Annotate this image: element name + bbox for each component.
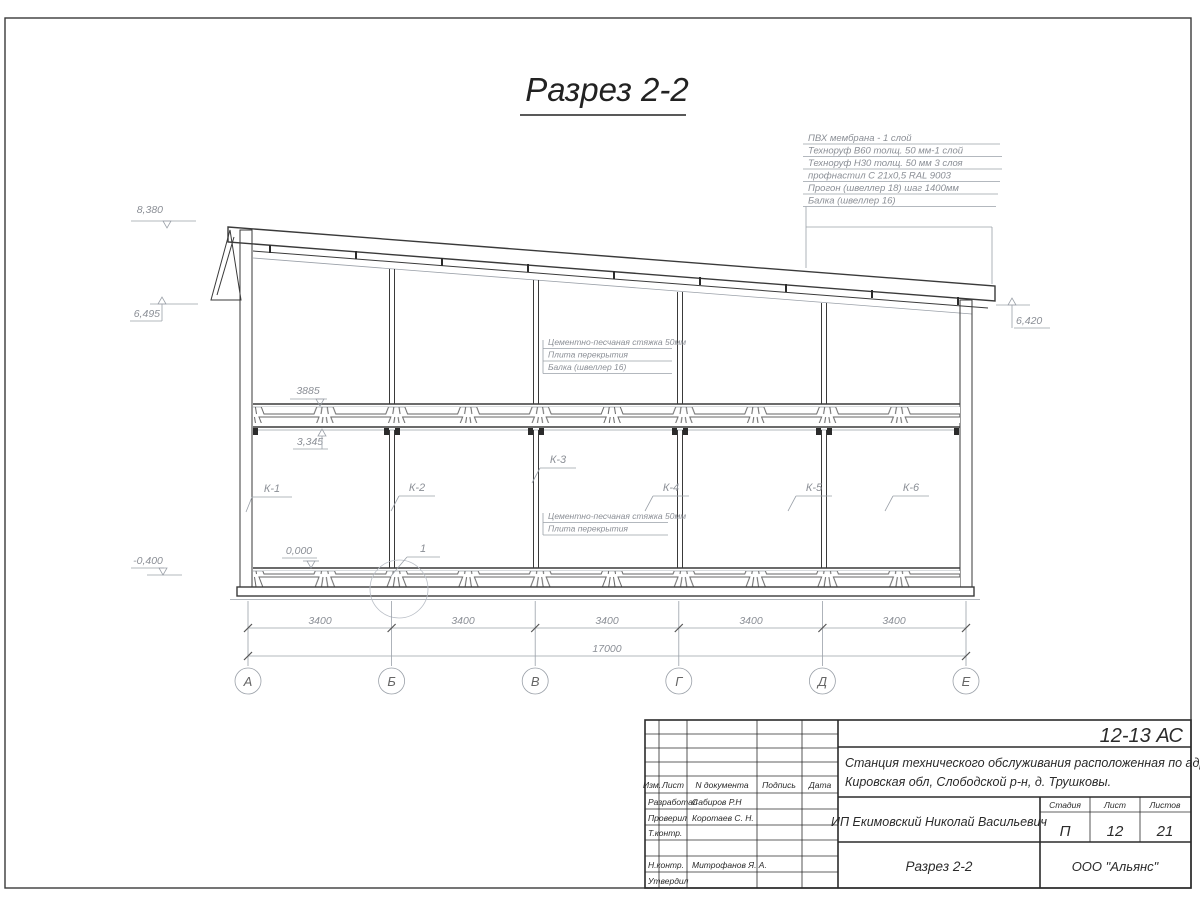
column-label-k2: К-2	[391, 482, 435, 511]
deck-profile	[253, 407, 960, 423]
upper-floor-callout: Цементно-песчаная стяжка 50мм Плита пере…	[543, 337, 686, 374]
detail-number: 1	[420, 543, 426, 555]
elevation-arrow-icon	[163, 221, 171, 228]
header-date: Дата	[808, 780, 832, 790]
elevation-eaves-right: 6,420	[996, 298, 1050, 328]
lower-floor-callout: Цементно-песчаная стяжка 50мм Плита пере…	[543, 511, 686, 535]
column-label-text: К-3	[550, 454, 567, 466]
project-line-1: Станция технического обслуживания распол…	[845, 756, 1200, 770]
roof-layer-line: Техноруф В60 толщ. 50 мм-1 слой	[808, 146, 964, 157]
dim-bay: 3400	[308, 615, 332, 627]
upper-floor-line: Плита перекрытия	[548, 350, 628, 360]
roof-layer-line: Техноруф Н30 толщ. 50 мм 3 слоя	[808, 158, 963, 169]
dim-bay: 3400	[739, 615, 763, 627]
ground-deck-profile	[253, 571, 960, 587]
role-label: Разработал	[648, 797, 698, 807]
role-label: Т.контр.	[648, 828, 682, 838]
stage-value: П	[1060, 823, 1071, 840]
elevation-eaves-left-value: 6,495	[134, 308, 160, 320]
title-block-header: Изм. Лист N документа Подпись Дата	[643, 780, 832, 790]
column-label-text: К-2	[409, 482, 425, 494]
axis-label: Б	[387, 674, 396, 689]
lower-floor-line: Цементно-песчаная стяжка 50мм	[548, 511, 686, 521]
elevation-top: 8,380	[131, 204, 196, 228]
column-label-k1: К-1	[246, 483, 292, 512]
foundation-slab	[237, 587, 974, 596]
header-doc: N документа	[695, 780, 748, 790]
elevation-ground-value: -0,400	[133, 555, 163, 567]
elevation-floor: 0,000	[282, 545, 319, 568]
elevation-beam-bottom: 3,345	[293, 429, 328, 449]
elevation-beam-bottom-value: 3,345	[297, 436, 323, 448]
sheet-label: Лист	[1103, 800, 1126, 810]
elevation-arrow-icon	[1008, 298, 1016, 305]
axis-label: В	[531, 674, 540, 689]
page-title: Разрез 2-2	[525, 71, 689, 108]
roof-layer-line: профнастил С 21х0,5 RAL 9003	[808, 171, 952, 182]
doc-number: 12-13 АС	[1100, 725, 1184, 747]
project-line-2: Кировская обл, Слободской р-н, д. Трушко…	[845, 775, 1111, 789]
sheet-value: 12	[1107, 823, 1124, 840]
elevation-arrow-icon	[316, 399, 324, 406]
role-label: Проверил	[648, 813, 687, 823]
drawing-sheet: Разрез 2-2 ПВХ мембрана - 1 слой Технору…	[0, 0, 1200, 900]
elevation-slab-top: 3885	[290, 385, 327, 406]
upper-floor-line: Цементно-песчаная стяжка 50мм	[548, 337, 686, 347]
sheets-value: 21	[1156, 823, 1174, 840]
lower-columns	[390, 430, 827, 568]
roof-layer-line: Балка (швеллер 16)	[808, 196, 896, 207]
elevation-arrow-icon	[307, 561, 315, 568]
column-label-text: К-5	[806, 482, 823, 494]
role-name: Коротаев С. Н.	[692, 813, 754, 823]
role-name: Сабиров Р.Н	[692, 797, 742, 807]
lower-floor-line: Плита перекрытия	[548, 524, 628, 534]
column-label-text: К-1	[264, 483, 280, 495]
elevation-eaves-left: 6,495	[130, 297, 198, 321]
header-list: Лист	[661, 780, 684, 790]
section-drawing-canvas: Разрез 2-2 ПВХ мембрана - 1 слой Технору…	[0, 0, 1200, 900]
header-sign: Подпись	[762, 780, 796, 790]
role-name: Митрофанов Я. А.	[692, 860, 767, 870]
dim-values: 3400 3400 3400 3400 3400 17000	[308, 615, 906, 655]
role-label: Н.контр.	[648, 860, 684, 870]
title-block: Изм. Лист N документа Подпись Дата Разра…	[643, 720, 1200, 888]
elevation-eaves-right-value: 6,420	[1016, 315, 1042, 327]
client-name: ИП Екимовский Николай Васильевич	[831, 815, 1047, 829]
title-block-roles: Разработал Сабиров Р.Н Проверил Коротаев…	[647, 797, 767, 886]
column-label-text: К-4	[663, 482, 679, 494]
company-name: ООО "Альянс"	[1072, 859, 1160, 874]
roof-slab	[228, 227, 995, 301]
elevation-arrow-icon	[158, 297, 166, 304]
roof-assembly	[211, 227, 995, 314]
elevation-floor-value: 0,000	[286, 545, 312, 557]
dim-bay: 3400	[882, 615, 906, 627]
role-label: Утвердил	[647, 876, 689, 886]
elevation-top-value: 8,380	[137, 204, 163, 216]
dim-total: 17000	[592, 643, 621, 655]
column-label-k5: К-5	[788, 482, 832, 511]
left-wall	[240, 230, 252, 587]
beam-seat-plates	[253, 428, 959, 435]
elevation-ground: -0,400	[131, 555, 182, 575]
dimension-chain: 3400 3400 3400 3400 3400 17000	[244, 601, 970, 666]
column-label-text: К-6	[903, 482, 920, 494]
elevation-arrow-icon	[159, 568, 167, 575]
purlin-line-upper	[253, 251, 988, 308]
sheet-title: Разрез 2-2	[906, 859, 973, 874]
stage-label: Стадия	[1049, 800, 1081, 810]
column-label-k6: К-6	[885, 482, 929, 511]
axis-label: Е	[962, 674, 971, 689]
dim-bay: 3400	[595, 615, 619, 627]
axis-label: А	[243, 674, 253, 689]
header-izm: Изм.	[643, 780, 661, 790]
roof-layer-line: ПВХ мембрана - 1 слой	[808, 133, 912, 144]
axis-bubbles: А Б В Г Д Е	[235, 668, 979, 694]
ground-floor-deck	[230, 568, 980, 600]
sheets-label: Листов	[1149, 800, 1182, 810]
upper-floor-deck	[253, 404, 960, 435]
purlin-line-lower	[253, 258, 972, 314]
roof-layers-callout: ПВХ мембрана - 1 слой Техноруф В60 толщ.…	[803, 133, 1002, 284]
elevation-slab-top-value: 3885	[296, 385, 320, 397]
axis-label: Г	[675, 674, 683, 689]
axis-label: Д	[816, 674, 827, 689]
dim-bay: 3400	[451, 615, 475, 627]
roof-layer-line: Прогон (швеллер 18) шаг 1400мм	[808, 183, 959, 194]
upper-floor-line: Балка (швеллер 16)	[548, 362, 626, 372]
right-wall	[960, 300, 972, 587]
